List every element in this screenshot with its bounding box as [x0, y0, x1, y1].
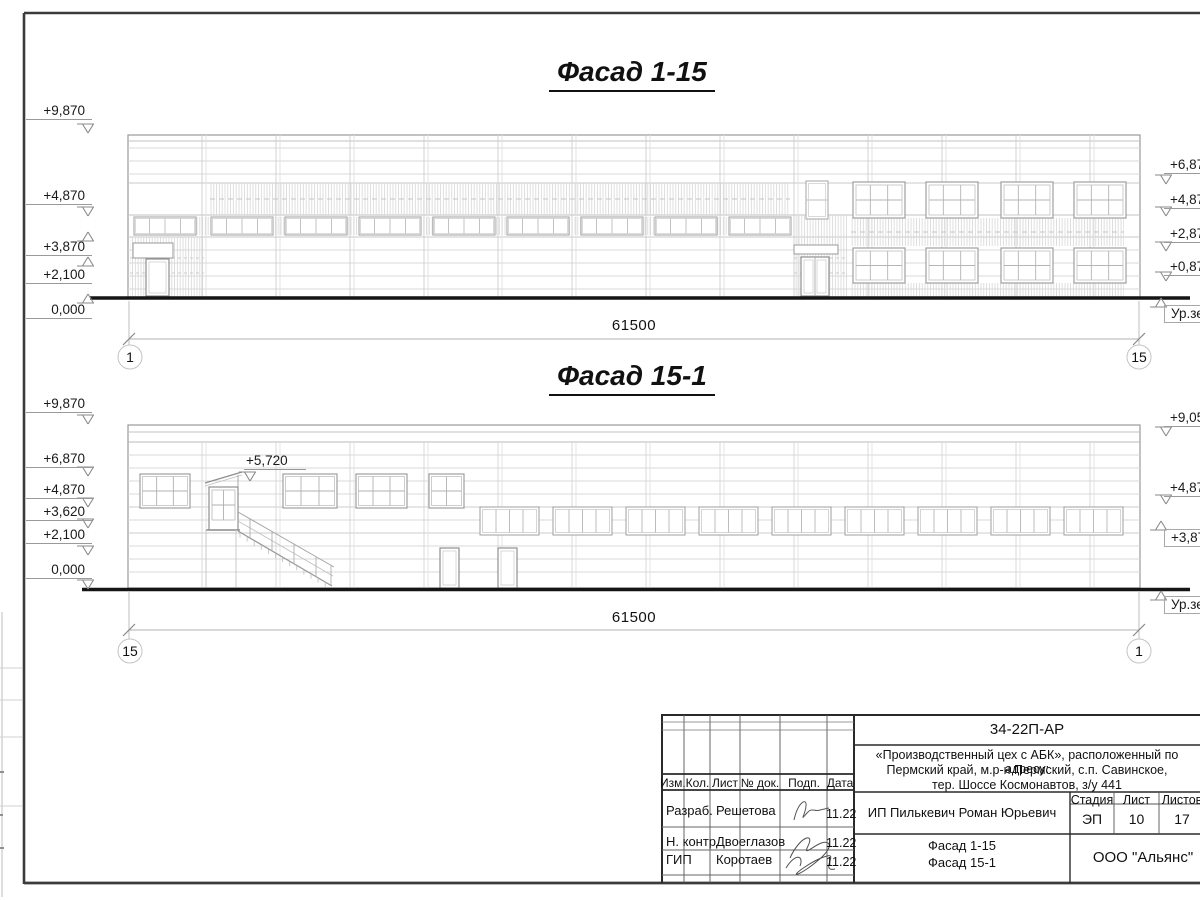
axis-marker: 1 [117, 349, 143, 365]
level-mark: +3,870 [26, 239, 92, 256]
role-razrab: Разраб. [666, 804, 713, 819]
col-header-podp: Подп. [781, 777, 827, 791]
col-header-izm: Изм. [660, 777, 685, 791]
level-mark: +9,05 [1164, 410, 1200, 427]
level-mark: +3,620 [26, 504, 92, 521]
col-header-kol: Кол. [684, 777, 711, 791]
sheets-label: Листов [1159, 793, 1200, 807]
level-mark: +2,100 [26, 527, 92, 544]
level-mark: +4,87 [1164, 192, 1200, 209]
doc-title-line1: Фасад 1-15 [854, 839, 1070, 854]
ground-level-label: Ур.зе [1164, 305, 1200, 323]
date-row1: 11.22 [826, 807, 854, 821]
project-address-line2: Пермский край, м.р-н Пермский, с.п. Сави… [860, 763, 1194, 777]
client-name: ИП Пилькевич Роман Юрьевич [854, 806, 1070, 821]
level-mark: +2,100 [26, 267, 92, 284]
dimension-61500: 61500 [434, 609, 834, 626]
col-header-ndok: № док. [739, 777, 781, 791]
facade2-title: Фасад 15-1 [549, 360, 715, 396]
axis-marker: 15 [117, 643, 143, 659]
document-code: 34-22П-АР [854, 721, 1200, 738]
level-mark: +6,870 [26, 451, 92, 468]
sheet-number: 10 [1114, 811, 1159, 827]
doc-title-line2: Фасад 15-1 [854, 856, 1070, 871]
canopy-level-annotation: +5,720 [244, 453, 306, 470]
level-mark: +0,87 [1164, 259, 1200, 276]
organization-name: ООО "Альянс" [1070, 849, 1200, 866]
date-row2: 11.22 [826, 836, 854, 850]
ground-level-label: Ур.зе [1164, 596, 1200, 614]
drawing-sheet: Фасад 1-15 +9,870 +4,870 +3,870 +2,100 0… [0, 0, 1200, 900]
level-mark: +4,87 [1164, 480, 1200, 497]
sheet-label: Лист [1114, 793, 1159, 807]
name-korotaev: Коротаев [716, 853, 772, 868]
level-mark: 0,000 [26, 302, 92, 319]
col-header-list: Лист [710, 777, 740, 791]
level-mark: +6,87 [1164, 157, 1200, 174]
level-mark: +9,870 [26, 396, 92, 413]
level-mark: 0,000 [26, 562, 92, 579]
axis-marker: 1 [1126, 643, 1152, 659]
name-dvoeglazov: Двоеглазов [716, 835, 785, 850]
facade1-title: Фасад 1-15 [549, 56, 715, 92]
stage-label: Стадия [1070, 793, 1114, 807]
dimension-61500: 61500 [434, 317, 834, 334]
stage-value: ЭП [1070, 811, 1114, 827]
facade1-title-wrap: Фасад 1-15 [432, 56, 832, 92]
level-mark: +4,870 [26, 188, 92, 205]
facade2-title-wrap: Фасад 15-1 [432, 360, 832, 396]
date-row3: 11.22 [826, 855, 854, 869]
sheets-total: 17 [1159, 811, 1200, 827]
role-nkontr: Н. контр. [666, 835, 720, 850]
col-header-data: Дата [826, 777, 854, 791]
axis-marker: 15 [1126, 349, 1152, 365]
level-mark: +2,87 [1164, 226, 1200, 243]
level-mark: +4,870 [26, 482, 92, 499]
role-gip: ГИП [666, 853, 692, 868]
level-mark: +9,870 [26, 103, 92, 120]
level-mark: +3,87 [1164, 529, 1200, 547]
project-address-line3: тер. Шоссе Космонавтов, з/у 441 [860, 778, 1194, 792]
name-reshetova: Решетова [716, 804, 776, 819]
